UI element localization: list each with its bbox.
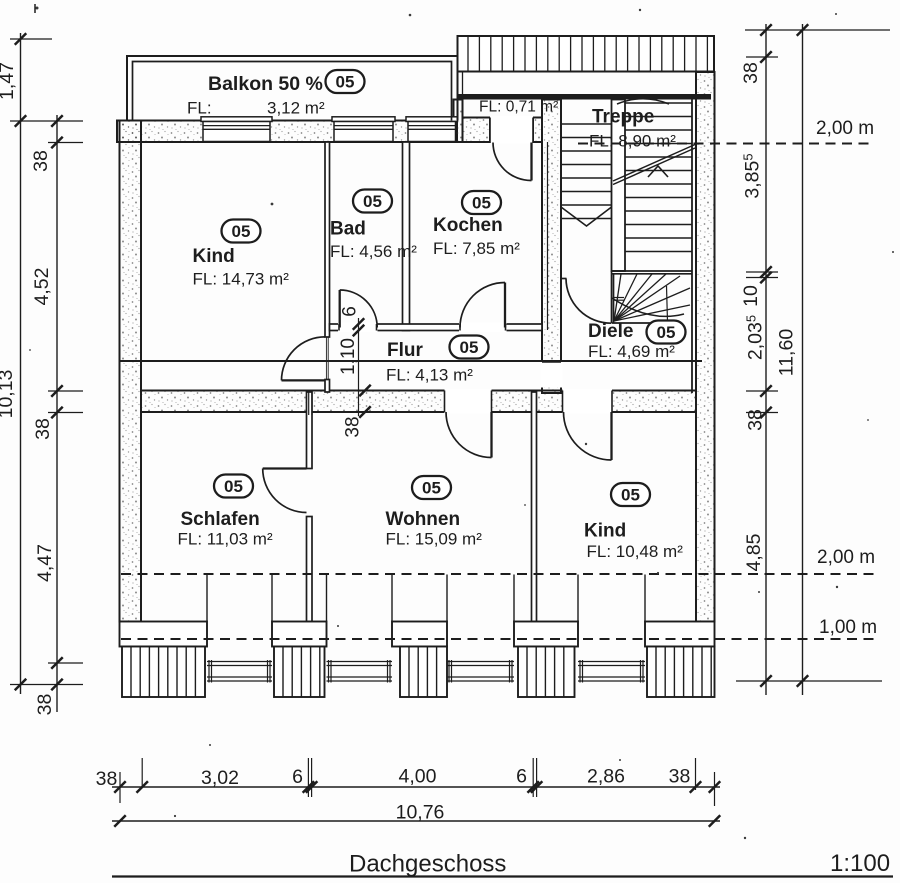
svg-text:05: 05 [657, 323, 676, 342]
svg-text:Flur: Flur [387, 340, 423, 361]
svg-text:FL: 4,69 m²: FL: 4,69 m² [588, 342, 675, 361]
svg-text:1:100: 1:100 [830, 850, 890, 877]
svg-text:10: 10 [740, 285, 762, 307]
svg-text:38: 38 [34, 694, 56, 716]
svg-text:FL: 4,13 m²: FL: 4,13 m² [386, 366, 473, 385]
svg-text:10,76: 10,76 [396, 802, 445, 824]
svg-text:05: 05 [224, 477, 243, 496]
svg-text:4,00: 4,00 [399, 766, 437, 788]
svg-text:05: 05 [621, 486, 640, 505]
svg-text:38: 38 [740, 62, 762, 84]
svg-text:2,00 m: 2,00 m [817, 547, 875, 568]
svg-text:05: 05 [363, 192, 382, 211]
svg-text:1,00 m: 1,00 m [819, 617, 877, 638]
svg-text:1,47: 1,47 [0, 62, 18, 100]
svg-text:6: 6 [292, 766, 303, 788]
svg-text:FL: 15,09 m²: FL: 15,09 m² [386, 530, 483, 549]
svg-text:6: 6 [340, 306, 361, 317]
svg-text:1,10: 1,10 [338, 338, 359, 375]
svg-text:Dachgeschoss: Dachgeschoss [349, 851, 506, 878]
svg-text:2,86: 2,86 [587, 766, 625, 788]
svg-text:FL: 11,03 m²: FL: 11,03 m² [178, 530, 273, 549]
svg-text:Kind: Kind [193, 246, 235, 267]
svg-text:6: 6 [516, 766, 527, 788]
svg-text:FL: 8,90 m²: FL: 8,90 m² [589, 132, 676, 151]
svg-text:Diele: Diele [588, 321, 633, 342]
svg-text:05: 05 [422, 479, 441, 498]
svg-text:38: 38 [745, 409, 767, 431]
svg-text:Schlafen: Schlafen [181, 509, 260, 530]
svg-text:FL: 7,85 m²: FL: 7,85 m² [433, 239, 520, 258]
svg-text:Bad: Bad [330, 219, 366, 240]
svg-text:05: 05 [460, 338, 479, 357]
svg-text:4,52: 4,52 [31, 268, 53, 306]
svg-text:4,47: 4,47 [34, 544, 56, 582]
svg-text:05: 05 [472, 194, 491, 213]
svg-text:Wohnen: Wohnen [386, 509, 461, 530]
svg-text:FL: 14,73 m²: FL: 14,73 m² [193, 270, 290, 289]
svg-text:FL:: FL: [187, 99, 212, 118]
svg-text:38: 38 [343, 416, 364, 437]
svg-text:38: 38 [30, 150, 52, 172]
svg-text:38: 38 [96, 768, 118, 790]
svg-text:Kochen: Kochen [433, 215, 503, 236]
svg-text:05: 05 [336, 73, 355, 92]
svg-text:Balkon 50 %: Balkon 50 % [208, 73, 323, 95]
svg-text:Kind: Kind [584, 521, 626, 542]
svg-text:4,85: 4,85 [743, 533, 765, 571]
svg-text:FL: 10,48 m²: FL: 10,48 m² [587, 542, 684, 561]
svg-text:3,12 m²: 3,12 m² [267, 99, 325, 118]
svg-text:11,60: 11,60 [776, 329, 798, 377]
svg-text:38: 38 [669, 766, 691, 788]
svg-text:38: 38 [32, 418, 54, 440]
svg-text:3,02: 3,02 [201, 767, 239, 789]
svg-text:FL: 4,56 m²: FL: 4,56 m² [330, 242, 417, 261]
svg-text:Treppe: Treppe [592, 107, 654, 128]
svg-text:FL: 0,71 m²: FL: 0,71 m² [479, 99, 558, 116]
svg-text:05: 05 [232, 222, 251, 241]
svg-text:2,00 m: 2,00 m [816, 118, 874, 139]
svg-text:10,13: 10,13 [0, 370, 17, 419]
